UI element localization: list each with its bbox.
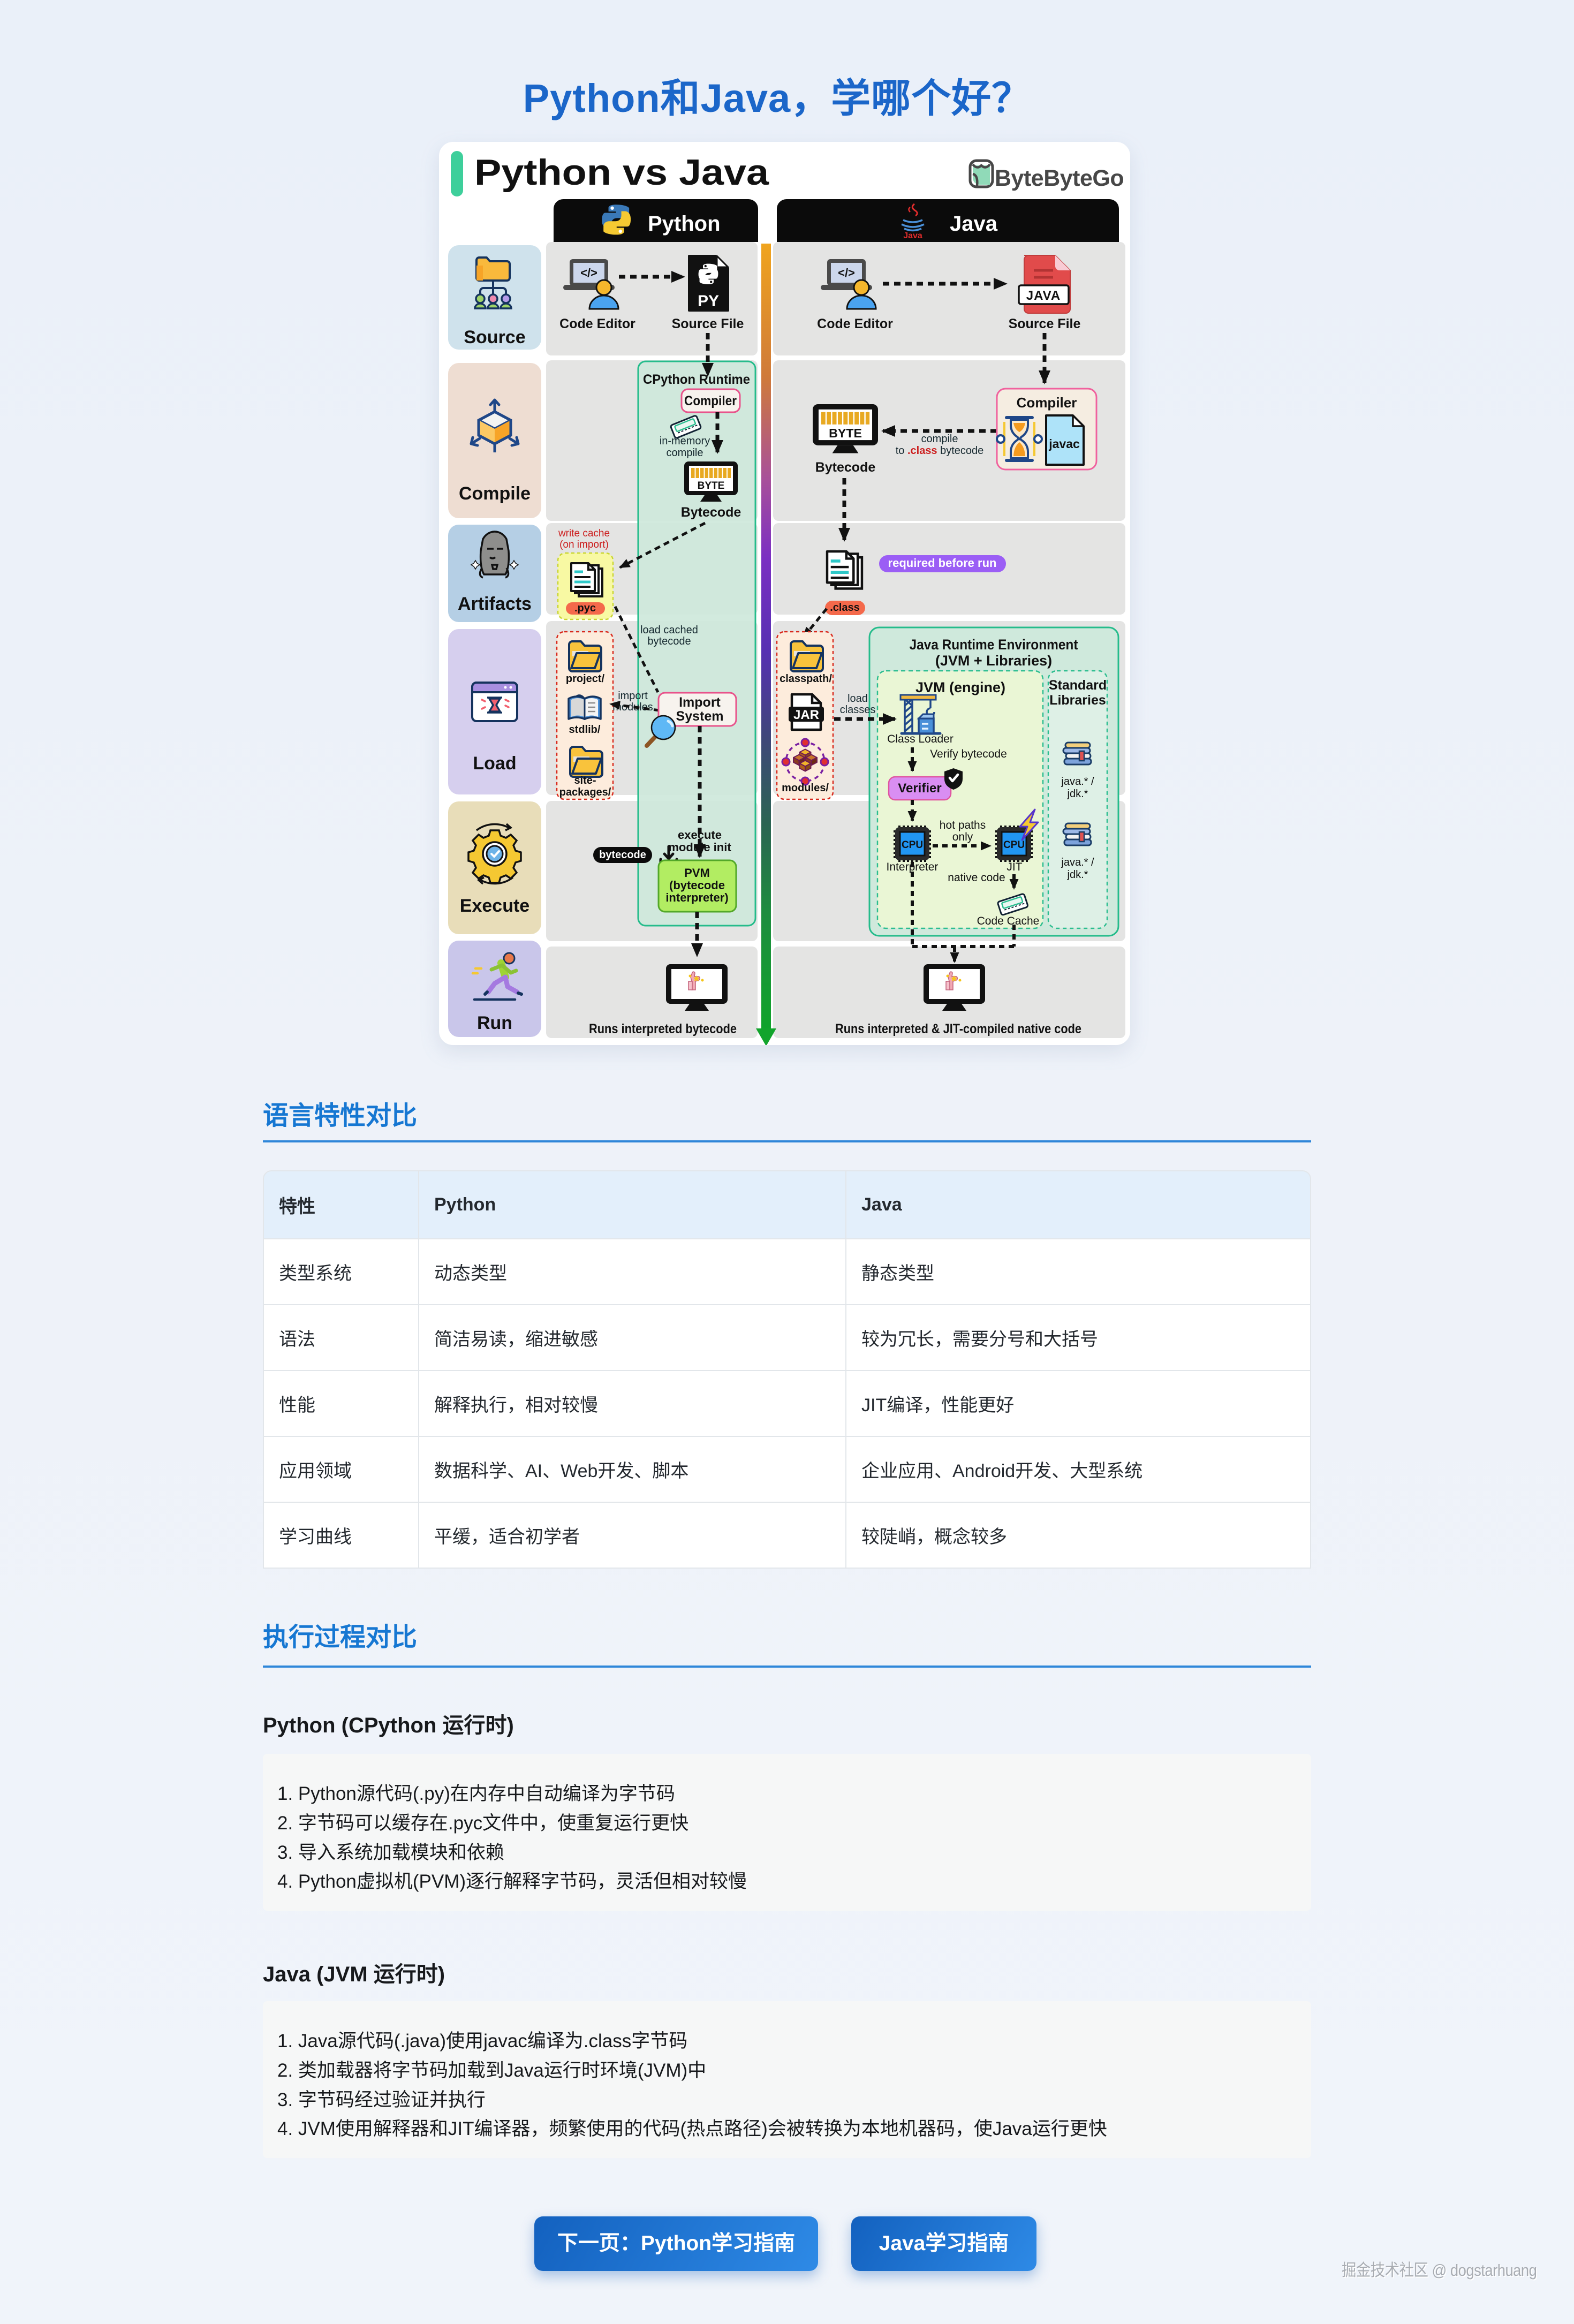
svg-text:site-: site- [574,775,596,786]
svg-text:to .class bytecode: to .class bytecode [896,445,984,457]
svg-text:native code: native code [948,872,1005,884]
svg-text:JAR: JAR [793,708,819,722]
svg-text:System: System [676,709,724,724]
svg-text:compile: compile [921,433,958,445]
svg-text:.class: .class [830,602,860,614]
svg-text:only: only [952,831,973,843]
svg-text:write cache: write cache [558,528,610,539]
svg-text:ByteByteGo: ByteByteGo [995,165,1124,191]
svg-text:Source File: Source File [672,316,744,331]
svg-text:JIT: JIT [1007,861,1022,873]
svg-text:Bytecode: Bytecode [815,460,876,475]
svg-text:CPython Runtime: CPython Runtime [643,372,750,387]
svg-text:compile: compile [667,447,703,459]
svg-text:(on import): (on import) [559,539,609,550]
svg-text:Code Editor: Code Editor [559,316,635,331]
svg-text:PVM: PVM [684,866,710,880]
svg-text:Python: Python [648,212,721,236]
svg-text:Execute: Execute [460,896,529,916]
svg-text:java.* /: java.* / [1061,857,1094,868]
svg-text:Runs interpreted bytecode: Runs interpreted bytecode [589,1021,737,1036]
svg-text:packages/: packages/ [559,786,611,798]
svg-text:Python vs Java: Python vs Java [474,152,769,193]
svg-text:classpath/: classpath/ [780,673,832,685]
svg-text:Source File: Source File [1009,316,1081,331]
svg-text:Java: Java [903,231,922,240]
svg-text:import: import [618,690,648,702]
svg-text:Verify bytecode: Verify bytecode [930,748,1007,760]
svg-text:Load: Load [473,753,516,774]
svg-text:load cached: load cached [640,624,698,636]
svg-text:javac: javac [1048,437,1080,451]
svg-text:Java: Java [950,212,998,236]
svg-text:project/: project/ [566,673,605,685]
svg-text:Compiler: Compiler [684,393,737,408]
svg-text:Source: Source [464,327,525,347]
svg-text:Runs interpreted & JIT-compile: Runs interpreted & JIT-compiled native c… [835,1021,1081,1036]
svg-text:.pyc: .pyc [574,602,596,614]
svg-text:Compile: Compile [459,483,531,504]
svg-text:JAVA: JAVA [1026,289,1061,303]
svg-text:in-memory: in-memory [660,435,710,447]
svg-text:Class Loader: Class Loader [887,733,954,745]
svg-text:load: load [847,693,868,705]
svg-text:hot paths: hot paths [940,819,986,831]
svg-text:interpreter): interpreter) [665,891,728,904]
svg-text:Bytecode: Bytecode [681,505,741,520]
svg-text:required before run: required before run [888,556,997,570]
svg-text:Run: Run [477,1013,512,1033]
svg-text:stdlib/: stdlib/ [569,724,601,736]
svg-text:Code Editor: Code Editor [817,316,893,331]
svg-text:modules/: modules/ [782,782,829,794]
svg-text:Libraries: Libraries [1049,693,1106,708]
svg-text:(bytecode: (bytecode [669,879,725,892]
svg-text:Artifacts: Artifacts [458,594,532,614]
svg-text:java.* /: java.* / [1061,776,1094,788]
svg-text:modules: modules [612,701,653,713]
svg-text:classes: classes [840,704,876,716]
svg-text:bytecode: bytecode [647,635,691,647]
svg-text:jdk.*: jdk.* [1067,869,1088,881]
svg-text:JVM (engine): JVM (engine) [915,679,1005,695]
svg-text:Import: Import [679,695,721,710]
svg-text:(JVM + Libraries): (JVM + Libraries) [935,653,1052,669]
svg-text:bytecode: bytecode [599,849,646,861]
svg-text:PY: PY [698,292,719,310]
svg-text:Standard: Standard [1049,678,1107,693]
svg-text:Java Runtime Environment: Java Runtime Environment [910,637,1078,653]
svg-text:Code Cache: Code Cache [977,915,1040,927]
svg-text:jdk.*: jdk.* [1067,788,1088,800]
svg-text:Verifier: Verifier [898,781,941,796]
svg-text:Compiler: Compiler [1017,395,1077,411]
